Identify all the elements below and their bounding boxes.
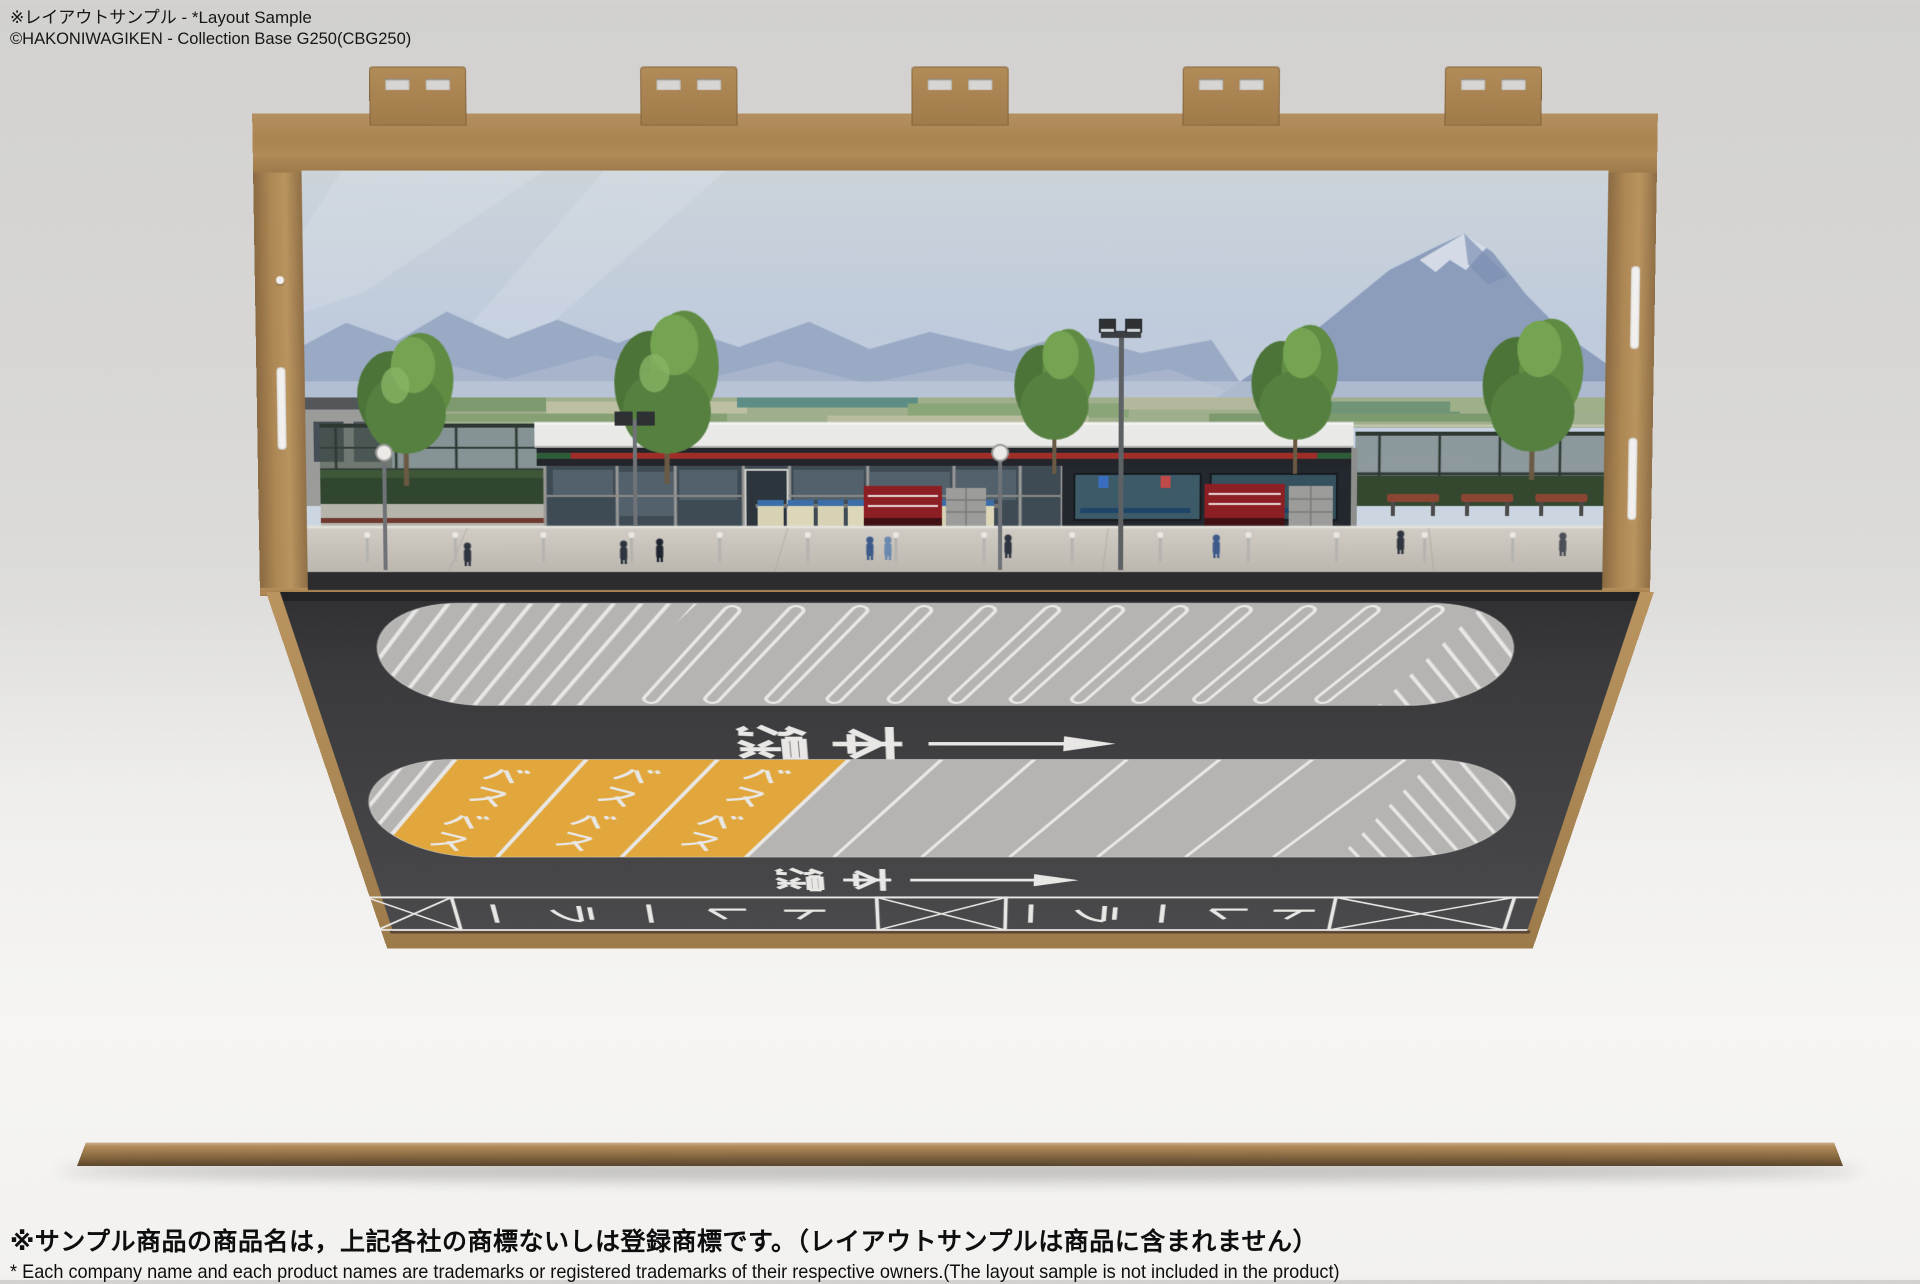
backdrop-left-edge bbox=[252, 113, 308, 596]
coin-lockers bbox=[946, 488, 986, 526]
vending-machines bbox=[864, 486, 942, 526]
assembly-tab bbox=[369, 66, 467, 125]
layout-sample-note: ※レイアウトサンプル - *Layout Sample bbox=[10, 7, 411, 29]
trademark-note-en: * Each company name and each product nam… bbox=[10, 1261, 1340, 1284]
assembly-tab bbox=[1182, 66, 1280, 125]
coin-lockers bbox=[1289, 486, 1333, 526]
fence-right bbox=[1355, 432, 1605, 516]
caption-bottom: ※サンプル商品の商品名は，上記各社の商標ないしは登録商標です。（レイアウトサンプ… bbox=[10, 1222, 1440, 1284]
caption-top: ※レイアウトサンプル - *Layout Sample ©HAKONIWAGIK… bbox=[10, 7, 411, 51]
parking-island-upper bbox=[363, 603, 1527, 705]
backdrop-board bbox=[252, 113, 1658, 596]
product-credit: ©HAKONIWAGIKEN - Collection Base G250(CB… bbox=[10, 29, 411, 50]
tab-slot bbox=[385, 79, 409, 90]
lane-arrow bbox=[928, 742, 1067, 745]
base-shadow bbox=[60, 1160, 1860, 1182]
backdrop-tabs bbox=[252, 113, 1658, 123]
sidewalk bbox=[307, 526, 1603, 574]
edge-slot bbox=[276, 367, 286, 450]
tab-slot bbox=[656, 79, 680, 90]
tab-slot bbox=[968, 79, 992, 90]
edge-slot bbox=[1630, 266, 1640, 349]
backdrop-print bbox=[302, 171, 1609, 590]
tab-slot bbox=[1461, 79, 1485, 90]
assembly-tab bbox=[911, 66, 1008, 125]
tab-slot bbox=[426, 79, 450, 90]
tab-slot bbox=[928, 79, 952, 90]
fascia-red-stripe bbox=[537, 453, 1352, 459]
edge-slot bbox=[1627, 438, 1637, 520]
backdrop-right-edge bbox=[1602, 113, 1658, 596]
vending-machines bbox=[1204, 484, 1284, 526]
tab-slot bbox=[1501, 79, 1525, 90]
tab-slot bbox=[1239, 79, 1263, 90]
parking-island-lower bbox=[340, 759, 1529, 857]
road-strip bbox=[308, 572, 1603, 590]
tab-slot bbox=[697, 79, 721, 90]
assembly-tab bbox=[640, 66, 737, 125]
trademark-note-ja: ※サンプル商品の商品名は，上記各社の商標ないしは登録商標です。（レイアウトサンプ… bbox=[10, 1222, 1440, 1258]
hinge-pin bbox=[276, 276, 284, 284]
assembly-tab bbox=[1444, 66, 1542, 125]
base-board: 本線 バス トレーラー bbox=[266, 592, 1654, 948]
lane-arrow bbox=[910, 879, 1037, 882]
tab-slot bbox=[1199, 79, 1223, 90]
